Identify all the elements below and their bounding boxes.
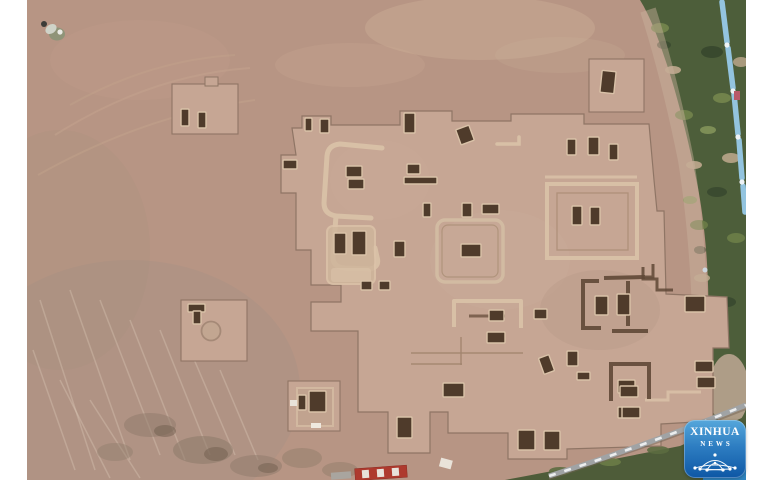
excavated-pit xyxy=(193,311,201,324)
excavated-pit xyxy=(462,203,472,217)
dirt-light-patch xyxy=(275,43,425,87)
banner-stripe xyxy=(377,469,385,477)
excavated-pit xyxy=(320,119,329,133)
white-label xyxy=(311,423,321,428)
circle-feature xyxy=(202,322,221,341)
speckle xyxy=(722,153,740,163)
white-speck xyxy=(290,400,297,406)
watermark-title: XINHUA xyxy=(690,427,740,439)
excavated-pit xyxy=(298,395,306,410)
excavated-pit xyxy=(487,332,505,343)
aerial-photo-page: XINHUA NEWS xyxy=(0,0,770,480)
excavated-pit xyxy=(394,241,405,257)
excavated-pit xyxy=(567,351,578,366)
speckle xyxy=(701,46,723,58)
fence-joint xyxy=(739,179,744,184)
excavated-pit xyxy=(567,139,576,155)
banner-stripe xyxy=(362,470,370,478)
speckle xyxy=(204,447,228,461)
excavated-pit xyxy=(346,166,362,177)
excavated-pit xyxy=(198,112,206,128)
banner-grey-bit xyxy=(331,471,351,479)
dark-trench xyxy=(604,277,645,278)
speckle xyxy=(647,446,669,454)
excavated-pit xyxy=(461,244,481,257)
excavated-pit xyxy=(489,310,504,321)
excavated-pit xyxy=(283,160,297,169)
fence-red-mark xyxy=(734,91,740,100)
equipment-object-wheel xyxy=(41,21,47,27)
banner-stripe xyxy=(392,468,400,476)
excavated-pit xyxy=(309,391,326,412)
excavated-pit xyxy=(622,407,640,418)
excavated-pit xyxy=(352,231,366,255)
excavated-pit xyxy=(397,417,412,438)
excavated-pit xyxy=(534,309,547,319)
equipment-object-dot xyxy=(57,29,62,34)
excavated-pit xyxy=(379,281,390,290)
blue-fence-segment xyxy=(743,186,745,212)
excavated-pit xyxy=(334,233,346,254)
excavated-pit xyxy=(305,118,312,131)
trench-square-topright xyxy=(589,59,644,112)
excavated-pit xyxy=(181,109,189,126)
excavated-pit xyxy=(620,386,638,397)
excavation-site-photo xyxy=(0,0,770,480)
speckle xyxy=(258,463,278,473)
pit-house-lip xyxy=(331,268,371,282)
excavated-pit xyxy=(404,113,415,133)
excavated-pit xyxy=(617,294,630,315)
speckle xyxy=(282,448,322,468)
excavated-pit xyxy=(482,204,499,214)
excavated-pit xyxy=(361,281,372,290)
excavated-pit xyxy=(590,207,600,225)
xinhua-globe-network-icon xyxy=(692,450,738,472)
speckle xyxy=(733,57,749,67)
speckle xyxy=(700,126,716,134)
excavated-pit xyxy=(348,179,364,189)
xinhua-news-watermark: XINHUA NEWS xyxy=(684,420,746,478)
speckle xyxy=(713,93,731,103)
excavated-pit xyxy=(404,177,437,184)
excavated-pit xyxy=(407,164,420,174)
excavated-pit xyxy=(609,144,618,160)
excavated-pit xyxy=(595,296,608,315)
excavated-pit xyxy=(695,361,713,372)
excavated-pit xyxy=(443,383,464,397)
excavated-pit xyxy=(588,137,599,155)
speckle xyxy=(727,233,745,243)
speckle xyxy=(154,425,176,437)
tiny-marker xyxy=(703,268,708,273)
watermark-subtitle: NEWS xyxy=(697,441,733,448)
speckle xyxy=(97,443,133,461)
excavated-pit xyxy=(697,377,715,388)
trench-square-topleft-notch xyxy=(205,77,218,86)
fence-joint xyxy=(724,42,729,47)
excavated-pit xyxy=(423,203,431,217)
excavated-pit xyxy=(600,70,616,93)
excavated-pit xyxy=(685,296,705,312)
speckle xyxy=(707,187,727,197)
excavated-pit xyxy=(572,206,582,225)
excavated-pit xyxy=(577,372,590,380)
fence-joint xyxy=(735,134,740,139)
excavated-pit xyxy=(518,430,535,450)
excavated-pit xyxy=(544,431,560,450)
blue-fence-segment xyxy=(739,140,742,178)
photo-scene xyxy=(0,0,749,480)
